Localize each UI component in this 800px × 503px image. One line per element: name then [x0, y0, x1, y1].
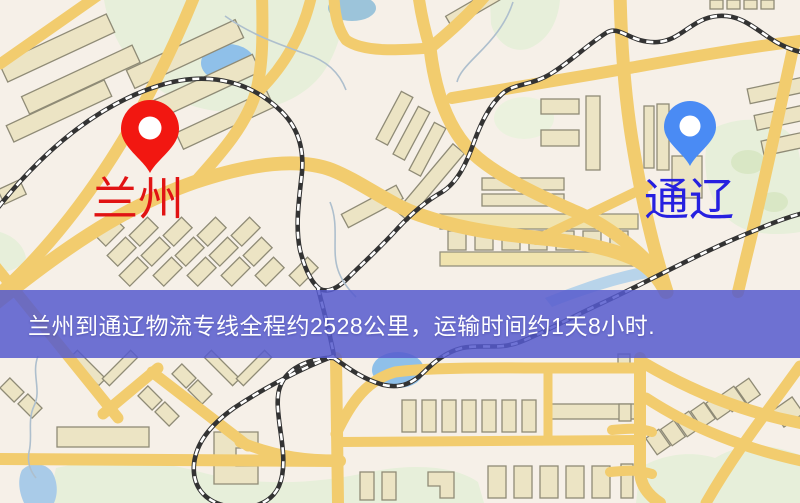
logistics-map-image: 兰州 通辽 兰州到通辽物流专线全程约2528公里，运输时间约1天8小时. [0, 0, 800, 503]
destination-city-label: 通辽 [644, 177, 734, 222]
route-info-banner: 兰州到通辽物流专线全程约2528公里，运输时间约1天8小时. [0, 290, 800, 358]
buildings-layer [0, 0, 800, 500]
map-background [0, 0, 800, 503]
origin-pin-icon [121, 100, 179, 173]
route-info-text: 兰州到通辽物流专线全程约2528公里，运输时间约1天8小时. [0, 307, 655, 341]
origin-city-label: 兰州 [92, 176, 184, 222]
